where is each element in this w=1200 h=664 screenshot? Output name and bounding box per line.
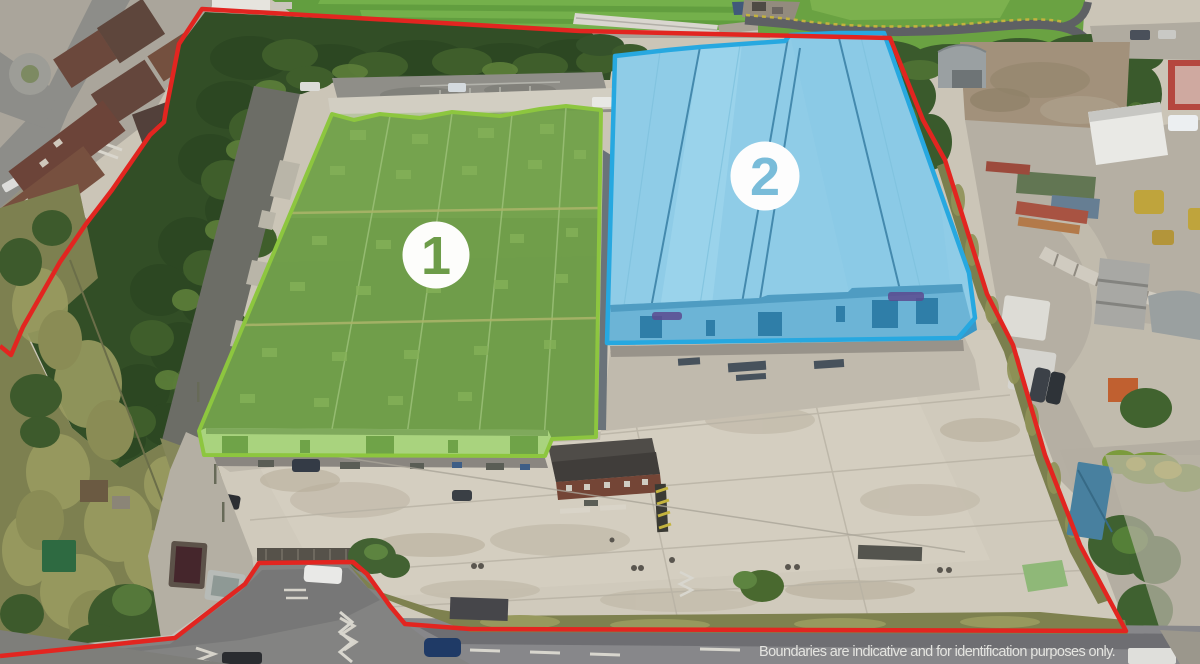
svg-text:2: 2 <box>750 147 780 207</box>
svg-text:Boundaries are indicative and: Boundaries are indicative and for identi… <box>759 644 1115 660</box>
svg-text:1: 1 <box>421 226 451 286</box>
